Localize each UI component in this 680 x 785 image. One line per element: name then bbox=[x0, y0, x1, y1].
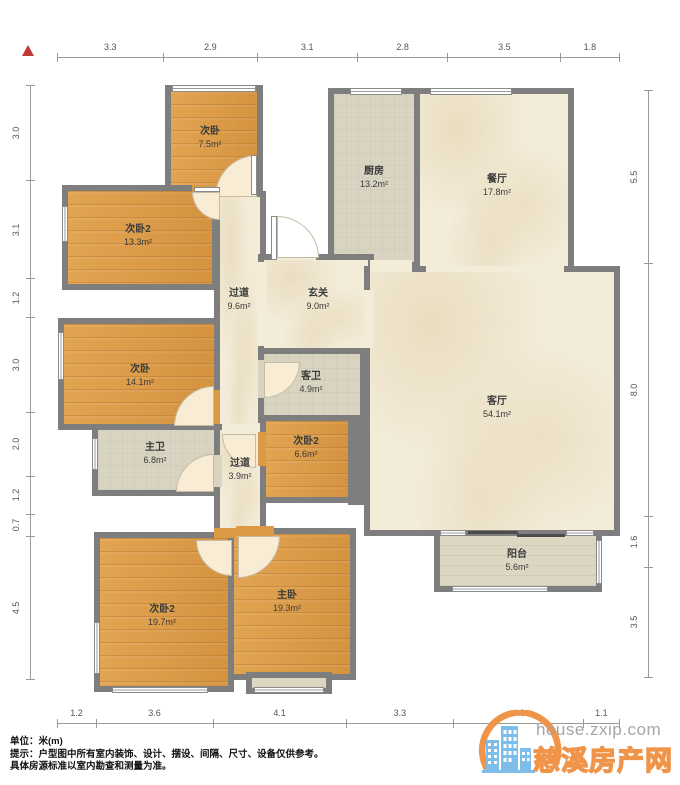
dim-label-left: 2.0 bbox=[11, 424, 23, 464]
dim-label-top: 2.9 bbox=[190, 42, 230, 54]
room-area: 3.9m² bbox=[228, 470, 251, 482]
disclaimer-text: 单位：米(m) 提示：户型图中所有室内装饰、设计、摆设、间隔、尺寸、设备仅供参考… bbox=[10, 736, 324, 774]
door-leaf-symbol bbox=[271, 216, 277, 260]
room-label-balcony: 阳台5.6m² bbox=[505, 549, 528, 573]
room-name: 过道 bbox=[228, 458, 251, 470]
room-area: 19.7m² bbox=[148, 616, 176, 628]
window-symbol bbox=[430, 88, 512, 95]
dim-tick bbox=[26, 476, 35, 477]
wall-opening bbox=[236, 526, 274, 536]
watermark-site-name: 慈溪房产网 bbox=[533, 739, 673, 778]
dim-label-left: 4.5 bbox=[11, 588, 23, 628]
window-symbol bbox=[62, 206, 68, 242]
window-symbol bbox=[440, 530, 466, 536]
dim-label-right: 3.5 bbox=[629, 602, 641, 642]
room-area: 6.8m² bbox=[143, 454, 166, 466]
dim-tick bbox=[644, 90, 653, 91]
room-label-bedroom2-lower: 次卧219.7m² bbox=[148, 604, 176, 628]
room-name: 客厅 bbox=[483, 396, 511, 408]
window-symbol bbox=[94, 622, 100, 674]
room-area: 9.6m² bbox=[227, 300, 250, 312]
window-symbol bbox=[452, 586, 548, 592]
window-symbol bbox=[350, 88, 402, 95]
dim-label-top: 3.1 bbox=[287, 42, 327, 54]
dim-label-top: 3.5 bbox=[484, 42, 524, 54]
dim-tick bbox=[26, 679, 35, 680]
dim-label-bottom: 1.2 bbox=[57, 708, 97, 720]
sliding-door-symbol bbox=[517, 534, 565, 537]
door-leaf-symbol bbox=[251, 155, 257, 195]
dim-tick bbox=[26, 536, 35, 537]
dim-tick bbox=[26, 85, 35, 86]
room-area: 9.0m² bbox=[306, 300, 329, 312]
room-area: 19.3m² bbox=[273, 602, 301, 614]
dim-label-top: 2.8 bbox=[383, 42, 423, 54]
sliding-door-symbol bbox=[468, 531, 518, 534]
dim-tick bbox=[213, 719, 214, 728]
dim-tick bbox=[163, 53, 164, 62]
dim-tick bbox=[96, 719, 97, 728]
dim-tick bbox=[447, 53, 448, 62]
room-area: 54.1m² bbox=[483, 408, 511, 420]
dim-label-left: 0.7 bbox=[11, 505, 23, 545]
dim-label-left: 3.0 bbox=[11, 113, 23, 153]
room-label-bedroom-mid: 次卧14.1m² bbox=[126, 364, 154, 388]
room-label-bedroom2-upper: 次卧213.3m² bbox=[124, 224, 152, 248]
dim-label-right: 5.5 bbox=[629, 157, 641, 197]
wall-opening bbox=[370, 260, 412, 272]
dim-label-top: 3.3 bbox=[90, 42, 130, 54]
room-label-bath-master: 主卫6.8m² bbox=[143, 442, 166, 466]
room-area: 5.6m² bbox=[505, 561, 528, 573]
room-name: 主卧 bbox=[273, 590, 301, 602]
dim-label-bottom: 4.1 bbox=[260, 708, 300, 720]
room-area: 14.1m² bbox=[126, 376, 154, 388]
room-name: 玄关 bbox=[306, 288, 329, 300]
wall-opening bbox=[214, 390, 220, 424]
room-name: 次卧 bbox=[198, 126, 221, 138]
dim-tick bbox=[560, 53, 561, 62]
dim-label-top: 1.8 bbox=[570, 42, 610, 54]
window-symbol bbox=[254, 687, 324, 693]
room-label-foyer: 玄关9.0m² bbox=[306, 288, 329, 312]
floor-plan: 次卧7.5m²次卧213.3m²厨房13.2m²餐厅17.8m²过道9.6m²玄… bbox=[0, 0, 680, 785]
tip-note-line2: 具体房源标准以室内勘查和测量为准。 bbox=[10, 761, 324, 774]
dim-tick bbox=[644, 516, 653, 517]
dim-line-top bbox=[57, 57, 619, 58]
dim-tick bbox=[357, 53, 358, 62]
wall-segment bbox=[348, 415, 366, 505]
tip-note-line1: 提示：户型图中所有室内装饰、设计、摆设、间隔、尺寸、设备仅供参考。 bbox=[10, 749, 324, 762]
door-arc-symbol bbox=[277, 216, 319, 258]
room-name: 餐厅 bbox=[483, 174, 511, 186]
dim-tick bbox=[346, 719, 347, 728]
floor-plan-page: 次卧7.5m²次卧213.3m²厨房13.2m²餐厅17.8m²过道9.6m²玄… bbox=[0, 0, 680, 785]
room-name: 次卧2 bbox=[124, 224, 152, 236]
dim-tick bbox=[26, 278, 35, 279]
room-name: 过道 bbox=[227, 288, 250, 300]
room-area: 13.2m² bbox=[360, 178, 388, 190]
room-name: 次卧2 bbox=[293, 436, 319, 448]
room-name: 次卧 bbox=[126, 364, 154, 376]
room-label-hallway-main: 过道9.6m² bbox=[227, 288, 250, 312]
wall-opening bbox=[214, 528, 236, 538]
dim-tick bbox=[257, 53, 258, 62]
room-label-dining: 餐厅17.8m² bbox=[483, 174, 511, 198]
dim-tick bbox=[26, 180, 35, 181]
room-area: 6.6m² bbox=[293, 448, 319, 460]
room-name: 厨房 bbox=[360, 166, 388, 178]
window-symbol bbox=[112, 687, 208, 693]
dim-tick bbox=[644, 263, 653, 264]
wall-opening bbox=[257, 262, 267, 346]
dim-tick bbox=[26, 514, 35, 515]
room-label-living: 客厅54.1m² bbox=[483, 396, 511, 420]
dim-label-left: 3.0 bbox=[11, 345, 23, 385]
window-symbol bbox=[566, 530, 594, 536]
wall-opening bbox=[426, 266, 564, 272]
room-label-master: 主卧19.3m² bbox=[273, 590, 301, 614]
dim-label-left: 1.2 bbox=[11, 278, 23, 318]
dim-tick bbox=[26, 412, 35, 413]
dim-label-right: 8.0 bbox=[629, 370, 641, 410]
dim-tick bbox=[619, 53, 620, 62]
wall-opening bbox=[214, 455, 222, 487]
dim-label-right: 1.6 bbox=[629, 522, 641, 562]
dim-tick bbox=[644, 567, 653, 568]
room-label-bath-guest: 客卫4.9m² bbox=[299, 371, 322, 395]
dim-tick bbox=[26, 317, 35, 318]
window-symbol bbox=[92, 438, 98, 470]
door-leaf-symbol bbox=[194, 187, 220, 192]
room-label-bedroom2-small: 次卧26.6m² bbox=[293, 436, 319, 460]
wall-opening bbox=[258, 432, 266, 466]
room-name: 阳台 bbox=[505, 549, 528, 561]
dim-label-bottom: 3.3 bbox=[380, 708, 420, 720]
room-name: 次卧2 bbox=[148, 604, 176, 616]
dim-line-left bbox=[30, 85, 31, 680]
wall-opening bbox=[364, 290, 374, 348]
room-name: 主卫 bbox=[143, 442, 166, 454]
room-area: 4.9m² bbox=[299, 383, 322, 395]
watermark-domain: house.zxip.com bbox=[536, 720, 661, 740]
room-label-bedroom-top: 次卧7.5m² bbox=[198, 126, 221, 150]
dim-tick bbox=[644, 677, 653, 678]
dim-tick bbox=[57, 719, 58, 728]
unit-note: 单位：米(m) bbox=[10, 736, 324, 749]
room-area: 17.8m² bbox=[483, 186, 511, 198]
window-symbol bbox=[596, 540, 602, 584]
room-label-kitchen: 厨房13.2m² bbox=[360, 166, 388, 190]
dim-label-bottom: 3.6 bbox=[135, 708, 175, 720]
dim-line-right bbox=[648, 90, 649, 678]
room-label-hallway-small: 过道3.9m² bbox=[228, 458, 251, 482]
room-area: 13.3m² bbox=[124, 236, 152, 248]
dim-tick bbox=[57, 53, 58, 62]
window-symbol bbox=[172, 85, 256, 92]
room-area: 7.5m² bbox=[198, 138, 221, 150]
dim-label-left: 3.1 bbox=[11, 210, 23, 250]
window-symbol bbox=[58, 332, 64, 380]
room-name: 客卫 bbox=[299, 371, 322, 383]
